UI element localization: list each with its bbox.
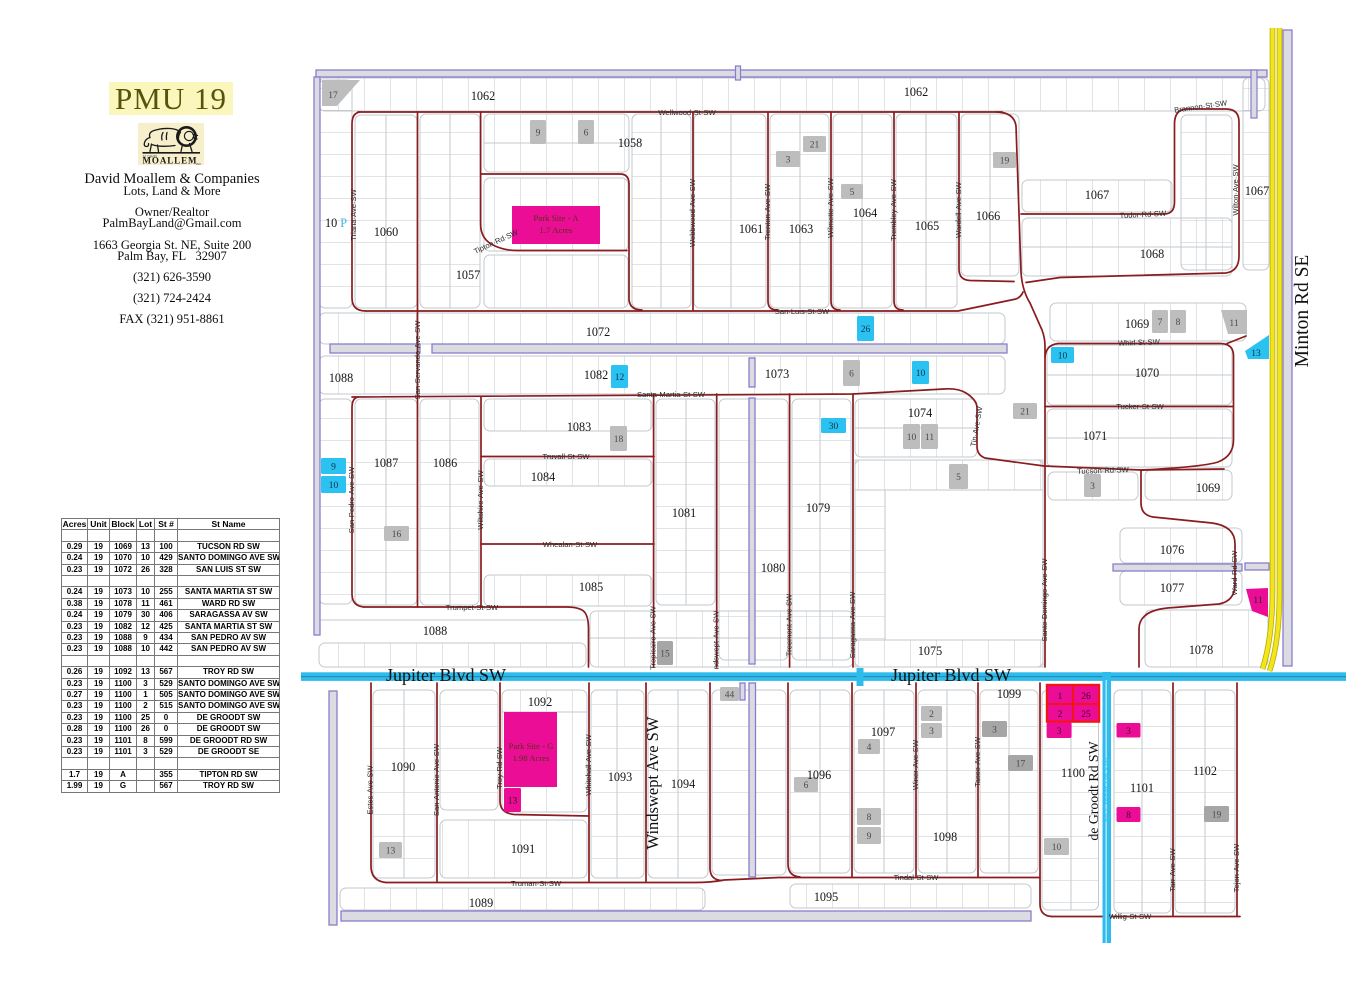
svg-text:Minton Rd SE: Minton Rd SE [1292, 255, 1313, 368]
svg-text:30: 30 [829, 422, 839, 432]
svg-text:1063: 1063 [789, 222, 813, 236]
svg-text:8: 8 [1176, 318, 1181, 328]
svg-text:1092: 1092 [528, 695, 552, 709]
svg-text:10: 10 [329, 481, 339, 491]
svg-text:11: 11 [1253, 596, 1262, 606]
svg-text:de Groodt Rd SW: de Groodt Rd SW [1086, 741, 1101, 840]
svg-text:Webbwood·Ave·SW: Webbwood·Ave·SW [688, 178, 697, 247]
svg-text:Willig·St·SW: Willig·St·SW [1109, 912, 1152, 921]
svg-text:1097: 1097 [871, 725, 895, 739]
svg-text:1101: 1101 [1130, 781, 1154, 795]
svg-text:1100: 1100 [1061, 766, 1085, 780]
svg-text:1.98 Acres: 1.98 Acres [513, 753, 550, 763]
svg-text:1067: 1067 [1085, 188, 1109, 202]
svg-text:1081: 1081 [672, 506, 696, 520]
svg-text:Tucson·Rd·SW: Tucson·Rd·SW [1077, 465, 1130, 476]
svg-text:1069: 1069 [1196, 481, 1220, 495]
svg-text:19: 19 [1000, 157, 1010, 167]
svg-text:26: 26 [861, 325, 871, 335]
svg-text:Tropicaire·Ave·SW: Tropicaire·Ave·SW [649, 605, 658, 670]
svg-text:1090: 1090 [391, 760, 415, 774]
svg-text:Truman·St·SW: Truman·St·SW [511, 879, 562, 888]
svg-text:Jupiter Blvd SW: Jupiter Blvd SW [891, 665, 1011, 685]
svg-text:1062: 1062 [904, 85, 928, 99]
svg-text:Whealan·St·SW: Whealan·St·SW [543, 540, 598, 549]
svg-text:1098: 1098 [933, 830, 957, 844]
svg-text:Tasco·Ave·SW: Tasco·Ave·SW [973, 736, 982, 787]
svg-text:9: 9 [536, 129, 541, 139]
svg-text:Whirl·St·SW: Whirl·St·SW [1118, 337, 1161, 347]
svg-text:18: 18 [614, 435, 624, 445]
svg-text:San·Servando·Ave·SW: San·Servando·Ave·SW [413, 320, 422, 400]
svg-text:Windswept Ave SW: Windswept Ave SW [643, 716, 662, 849]
svg-text:INC: INC [196, 162, 202, 165]
svg-text:1099: 1099 [997, 687, 1021, 701]
svg-text:Truvall·St·SW: Truvall·St·SW [543, 452, 591, 461]
svg-text:17: 17 [328, 91, 338, 101]
svg-text:1070: 1070 [1135, 366, 1159, 380]
svg-text:1095: 1095 [814, 890, 838, 904]
svg-text:Tarr·Ave·SW: Tarr·Ave·SW [1168, 848, 1177, 892]
svg-text:2: 2 [1058, 710, 1063, 720]
svg-text:1068: 1068 [1140, 247, 1164, 261]
svg-text:Tejon·Ave·SW: Tejon·Ave·SW [1232, 843, 1241, 892]
svg-text:6: 6 [584, 129, 589, 139]
svg-text:2: 2 [929, 710, 934, 720]
svg-text:ndswept·Ave·SW: ndswept·Ave·SW [712, 610, 721, 669]
svg-text:1096: 1096 [807, 768, 831, 782]
svg-text:Triana·Ave·SW: Triana·Ave·SW [349, 188, 358, 240]
svg-text:Trumpet·St·SW: Trumpet·St·SW [446, 603, 499, 612]
svg-text:Santa·Martia·St·SW: Santa·Martia·St·SW [637, 390, 706, 399]
svg-text:15: 15 [660, 650, 670, 660]
svg-text:1094: 1094 [671, 777, 695, 791]
svg-text:Troy·Rd·SW: Troy·Rd·SW [495, 746, 504, 789]
svg-text:Jupiter Blvd SW: Jupiter Blvd SW [386, 665, 506, 685]
svg-text:17: 17 [1016, 760, 1026, 770]
svg-text:9: 9 [867, 832, 872, 842]
svg-text:Wellwood·St·SW: Wellwood·St·SW [658, 108, 716, 117]
svg-text:Saragassa·Ave·SW: Saragassa·Ave·SW [848, 591, 857, 658]
svg-text:Tindal·St·SW: Tindal·St·SW [894, 873, 940, 882]
svg-text:13: 13 [1251, 349, 1261, 359]
svg-text:3: 3 [992, 726, 997, 736]
svg-text:1074: 1074 [908, 406, 932, 420]
svg-text:1057: 1057 [456, 268, 480, 282]
svg-text:1076: 1076 [1160, 543, 1184, 557]
svg-text:Wilmette·Ave·SW: Wilmette·Ave·SW [826, 177, 835, 238]
svg-text:8: 8 [867, 813, 872, 823]
svg-text:1088: 1088 [329, 371, 353, 385]
svg-text:16: 16 [392, 530, 402, 540]
svg-text:1064: 1064 [853, 206, 877, 220]
svg-text:1072: 1072 [586, 325, 610, 339]
svg-text:1077: 1077 [1160, 581, 1184, 595]
svg-text:3: 3 [1126, 727, 1131, 737]
svg-text:9: 9 [331, 463, 336, 473]
svg-text:Tucker·St·SW: Tucker·St·SW [1116, 402, 1164, 411]
svg-text:1088: 1088 [423, 624, 447, 638]
svg-text:26: 26 [1081, 692, 1091, 702]
svg-text:5: 5 [956, 473, 961, 483]
svg-text:Trembley·Ave·SW: Trembley·Ave·SW [889, 178, 898, 240]
svg-text:10: 10 [1058, 352, 1068, 362]
svg-text:6: 6 [849, 370, 854, 380]
svg-text:1080: 1080 [761, 561, 785, 575]
svg-text:1085: 1085 [579, 580, 603, 594]
svg-text:13: 13 [386, 847, 396, 857]
svg-text:Treemont·Ave·SW: Treemont·Ave·SW [785, 593, 794, 656]
svg-text:1078: 1078 [1189, 643, 1213, 657]
svg-text:1082: 1082 [584, 368, 608, 382]
svg-text:10: 10 [1052, 843, 1062, 853]
svg-text:Trenton·Ave·SW: Trenton·Ave·SW [763, 183, 772, 240]
svg-text:Park Site - G: Park Site - G [509, 741, 554, 751]
svg-text:San·Luis·St·SW: San·Luis·St·SW [775, 307, 830, 316]
svg-text:1102: 1102 [1193, 764, 1217, 778]
svg-text:3: 3 [1057, 727, 1062, 737]
svg-text:3: 3 [786, 156, 791, 166]
svg-text:1075: 1075 [918, 644, 942, 658]
svg-text:San·Antonio·Ave·SW: San·Antonio·Ave·SW [432, 743, 441, 816]
svg-text:5: 5 [850, 188, 855, 198]
svg-text:10: 10 [916, 369, 926, 379]
svg-text:1083: 1083 [567, 420, 591, 434]
svg-text:San·Pedro·Ave·SW: San·Pedro·Ave·SW [347, 466, 356, 533]
svg-text:1079: 1079 [806, 501, 830, 515]
svg-text:Winer·Ave·SW: Winer·Ave·SW [911, 739, 920, 790]
svg-text:1089: 1089 [469, 896, 493, 910]
svg-text:3: 3 [1090, 482, 1095, 492]
svg-text:3: 3 [929, 727, 934, 737]
svg-text:Whitehall·Ave·SW: Whitehall·Ave·SW [584, 733, 593, 795]
svg-text:Wiltshire·Ave·SW: Wiltshire·Ave·SW [476, 469, 485, 529]
svg-text:Wilton·Ave·SW: Wilton·Ave·SW [1231, 164, 1240, 216]
svg-text:21: 21 [810, 141, 820, 151]
svg-text:1062: 1062 [471, 89, 495, 103]
svg-text:1: 1 [1058, 692, 1063, 702]
svg-text:de·Groodt·Rd·SW: de·Groodt·Rd·SW [1103, 757, 1112, 822]
svg-text:1086: 1086 [433, 456, 457, 470]
svg-text:7: 7 [1158, 318, 1163, 328]
svg-text:10: 10 [907, 433, 917, 443]
svg-text:Park Site - A: Park Site - A [533, 213, 579, 223]
svg-text:1066: 1066 [976, 209, 1000, 223]
svg-text:Wardell·Ave·SW: Wardell·Ave·SW [954, 181, 963, 238]
svg-text:1093: 1093 [608, 770, 632, 784]
svg-text:1067: 1067 [1245, 184, 1269, 198]
svg-text:44: 44 [725, 691, 735, 701]
svg-text:10 P: 10 P [325, 216, 347, 230]
svg-text:25: 25 [1081, 710, 1091, 720]
svg-text:1091: 1091 [511, 842, 535, 856]
svg-text:Santo·Domingo·Ave·SW: Santo·Domingo·Ave·SW [1040, 558, 1049, 642]
svg-text:1.7 Acres: 1.7 Acres [539, 225, 573, 235]
svg-text:11: 11 [925, 433, 934, 443]
svg-text:1087: 1087 [374, 456, 398, 470]
svg-text:Estes·Ave·SW: Estes·Ave·SW [366, 765, 375, 815]
svg-text:MOALLEM: MOALLEM [143, 156, 198, 166]
svg-text:1084: 1084 [531, 470, 555, 484]
svg-text:21: 21 [1020, 408, 1030, 418]
svg-text:1071: 1071 [1083, 429, 1107, 443]
svg-text:6: 6 [804, 781, 809, 791]
svg-text:13: 13 [508, 797, 518, 807]
svg-text:19: 19 [1212, 811, 1222, 821]
svg-text:1061: 1061 [739, 222, 763, 236]
svg-text:1065: 1065 [915, 219, 939, 233]
svg-text:Ward·Rd·SW: Ward·Rd·SW [1230, 550, 1239, 596]
svg-text:11: 11 [1229, 319, 1238, 329]
svg-text:4: 4 [867, 743, 872, 753]
svg-text:1069: 1069 [1125, 317, 1149, 331]
svg-text:1060: 1060 [374, 225, 398, 239]
svg-text:8: 8 [1126, 811, 1131, 821]
svg-text:1058: 1058 [618, 136, 642, 150]
svg-text:1073: 1073 [765, 367, 789, 381]
svg-text:12: 12 [615, 373, 625, 383]
